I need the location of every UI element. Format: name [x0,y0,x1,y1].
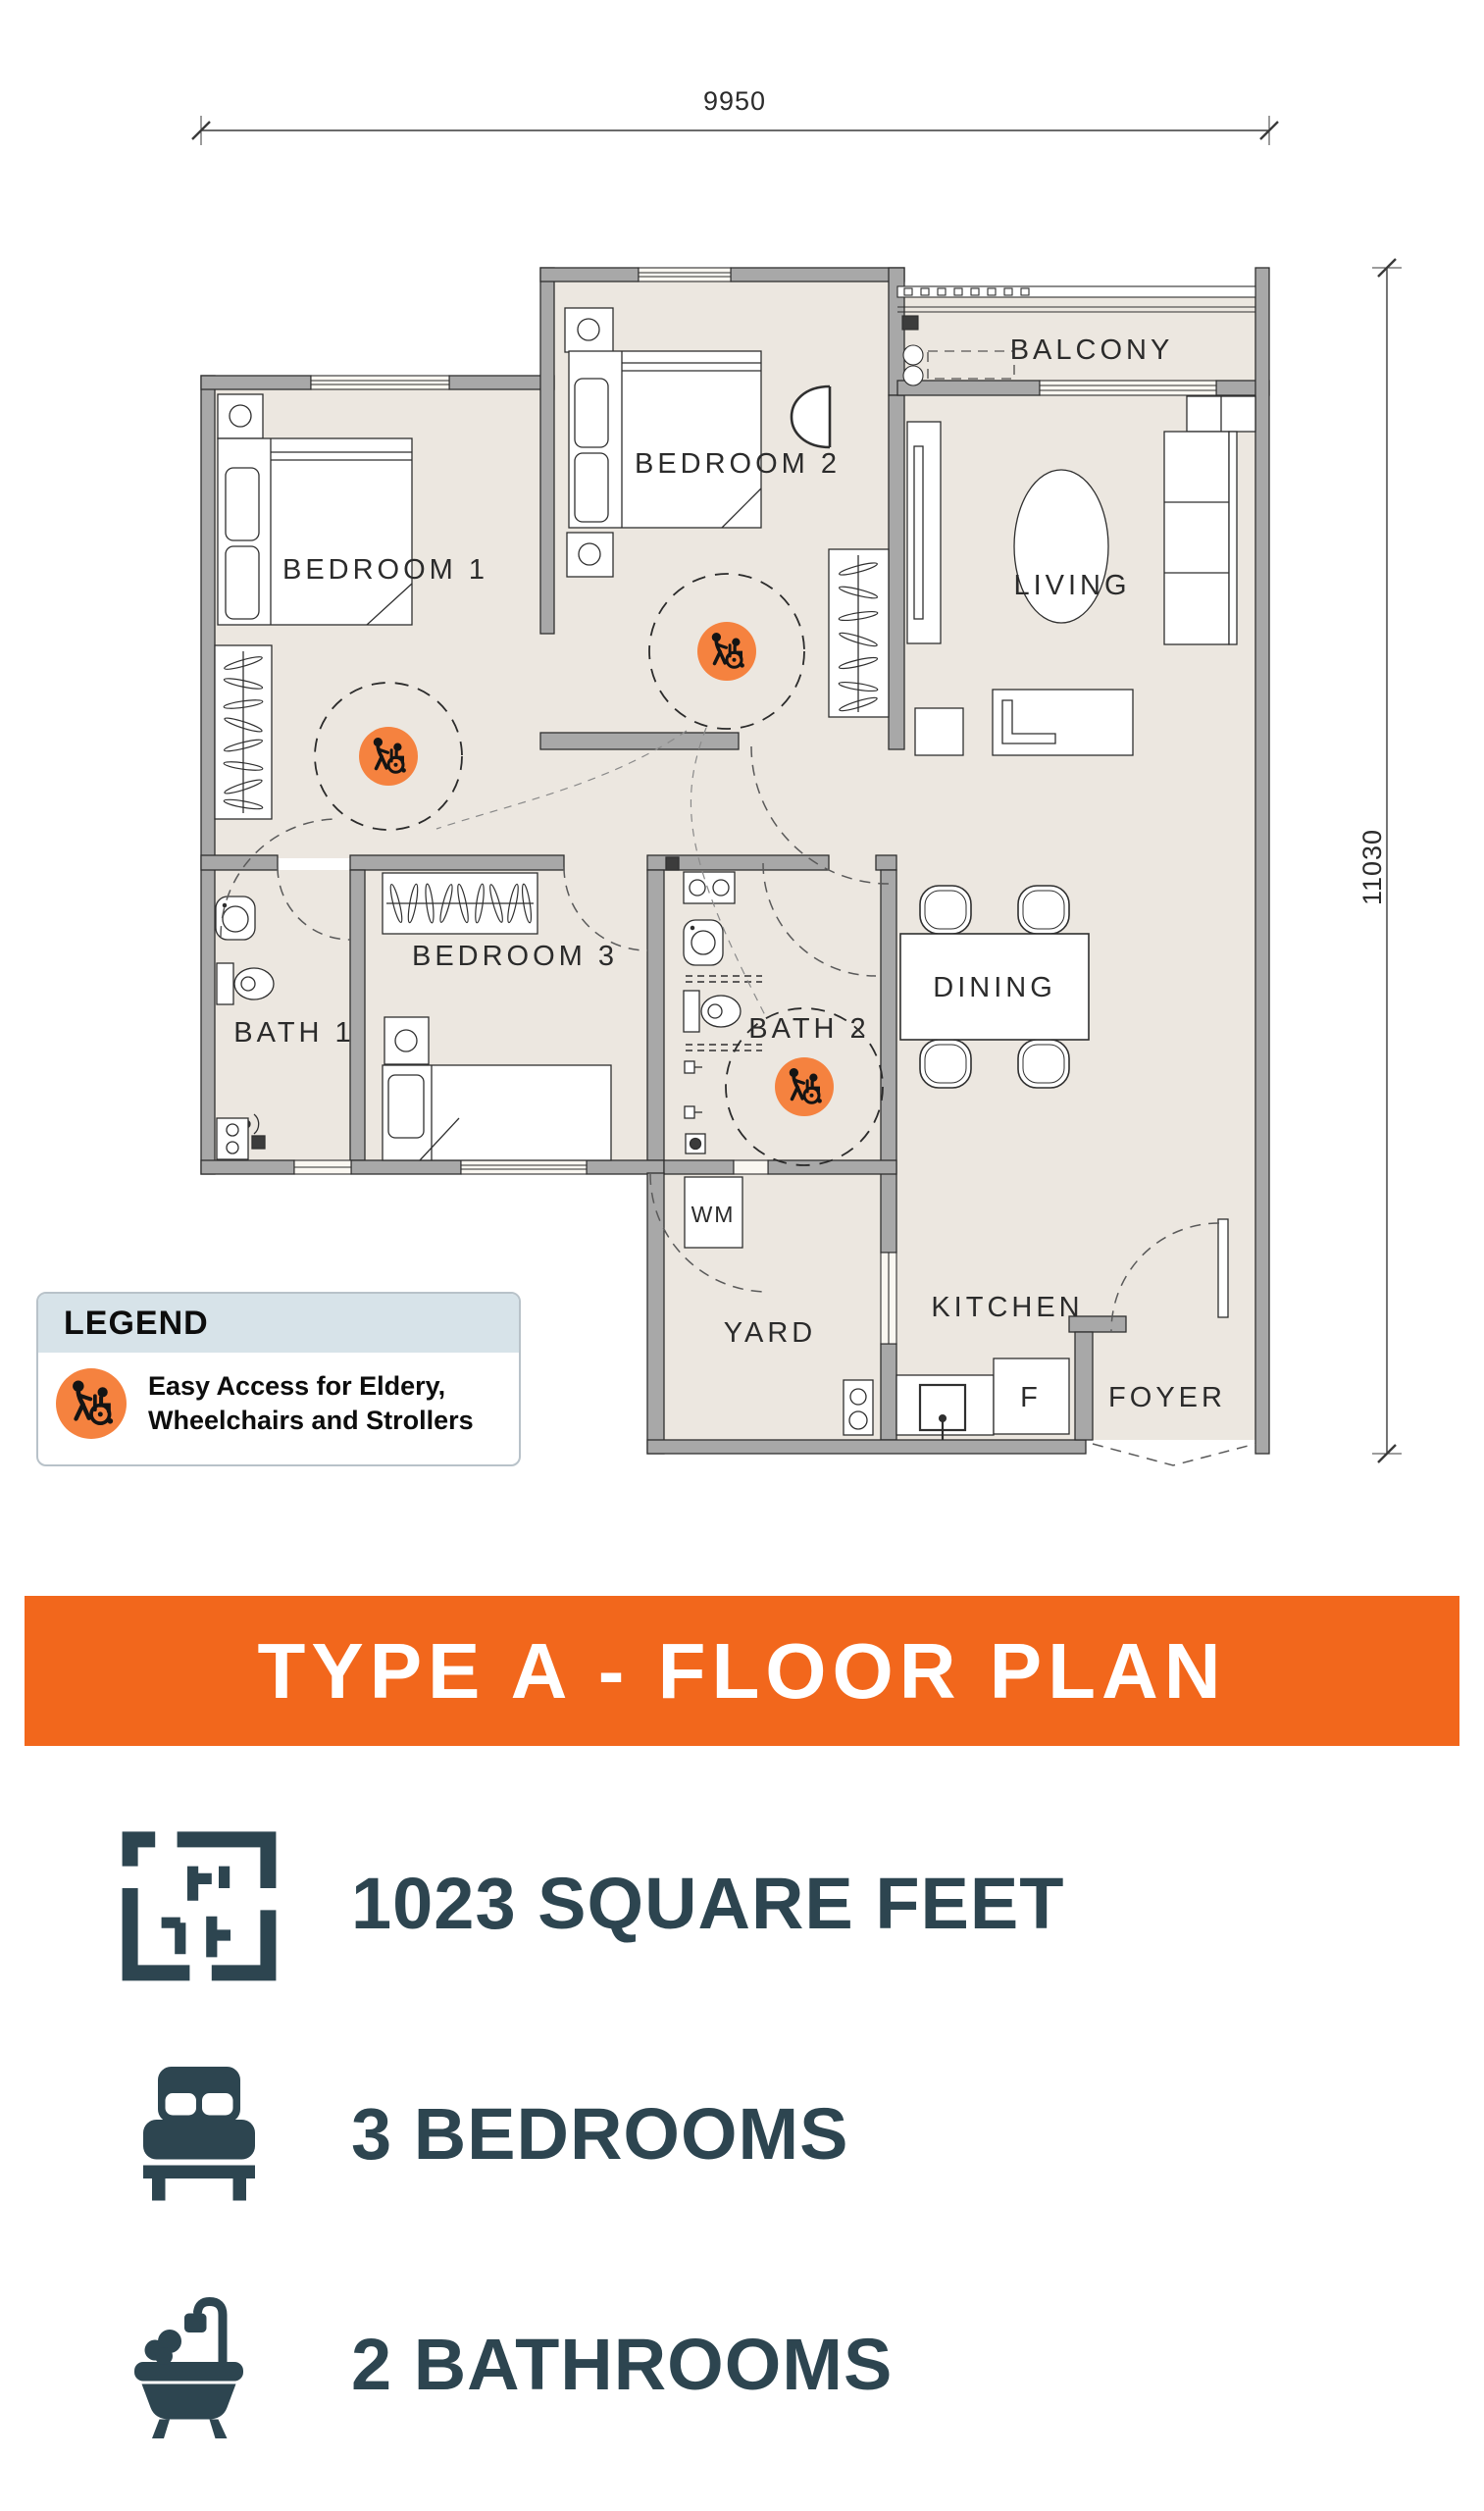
room-label-balcony: BALCONY [1010,334,1174,366]
floorplan-icon [93,1825,304,1982]
easy-access-badge-bedroom2 [697,622,756,681]
banner-title: TYPE A - FLOOR PLAN [257,1626,1226,1717]
easy-access-badge-bedroom1 [359,727,418,786]
legend-title: LEGEND [38,1294,519,1353]
banner: TYPE A - FLOOR PLAN [25,1596,1459,1746]
bathtub-icon [93,2291,304,2438]
room-label-bath1: BATH 1 [233,1017,354,1049]
dimension-top [192,116,1278,145]
room-label-dining: DINING [933,972,1056,1003]
room-label-fridge: F [1020,1382,1042,1413]
room-label-bedroom1: BEDROOM 1 [282,554,488,586]
feature-label-square-feet: 1023 SQUARE FEET [351,1862,1064,1945]
legend-item-line1: Easy Access for Eldery, [148,1369,474,1404]
feature-bathrooms: 2 BATHROOMS [93,2264,1445,2465]
feature-square-feet: 1023 SQUARE FEET [93,1803,1445,2004]
room-label-bedroom3: BEDROOM 3 [412,941,618,972]
legend-item-line2: Wheelchairs and Strollers [148,1404,474,1438]
feature-label-bedrooms: 3 BEDROOMS [351,2092,849,2176]
room-label-wm: WM [691,1202,736,1227]
legend-item-text: Easy Access for Eldery, Wheelchairs and … [148,1369,474,1438]
bed-icon [93,2061,304,2208]
page: 9950 11030 [0,0,1484,2511]
room-label-kitchen: KITCHEN [931,1292,1083,1323]
easy-access-badge-bath2 [775,1057,834,1116]
legend-box: LEGEND Easy Access for Eldery, Wheelchai… [36,1292,521,1466]
feature-label-bathrooms: 2 BATHROOMS [351,2323,893,2406]
room-label-bedroom2: BEDROOM 2 [635,448,841,480]
features-list: 1023 SQUARE FEET [93,1803,1445,2494]
dimension-height-label: 11030 [1357,829,1387,905]
room-label-yard: YARD [724,1317,816,1349]
feature-bedrooms: 3 BEDROOMS [93,2033,1445,2234]
easy-access-icon [54,1366,128,1441]
room-label-living: LIVING [1013,570,1130,601]
room-label-bath2: BATH 2 [748,1013,869,1045]
dimension-width-label: 9950 [703,86,766,116]
room-label-foyer: FOYER [1108,1382,1226,1413]
